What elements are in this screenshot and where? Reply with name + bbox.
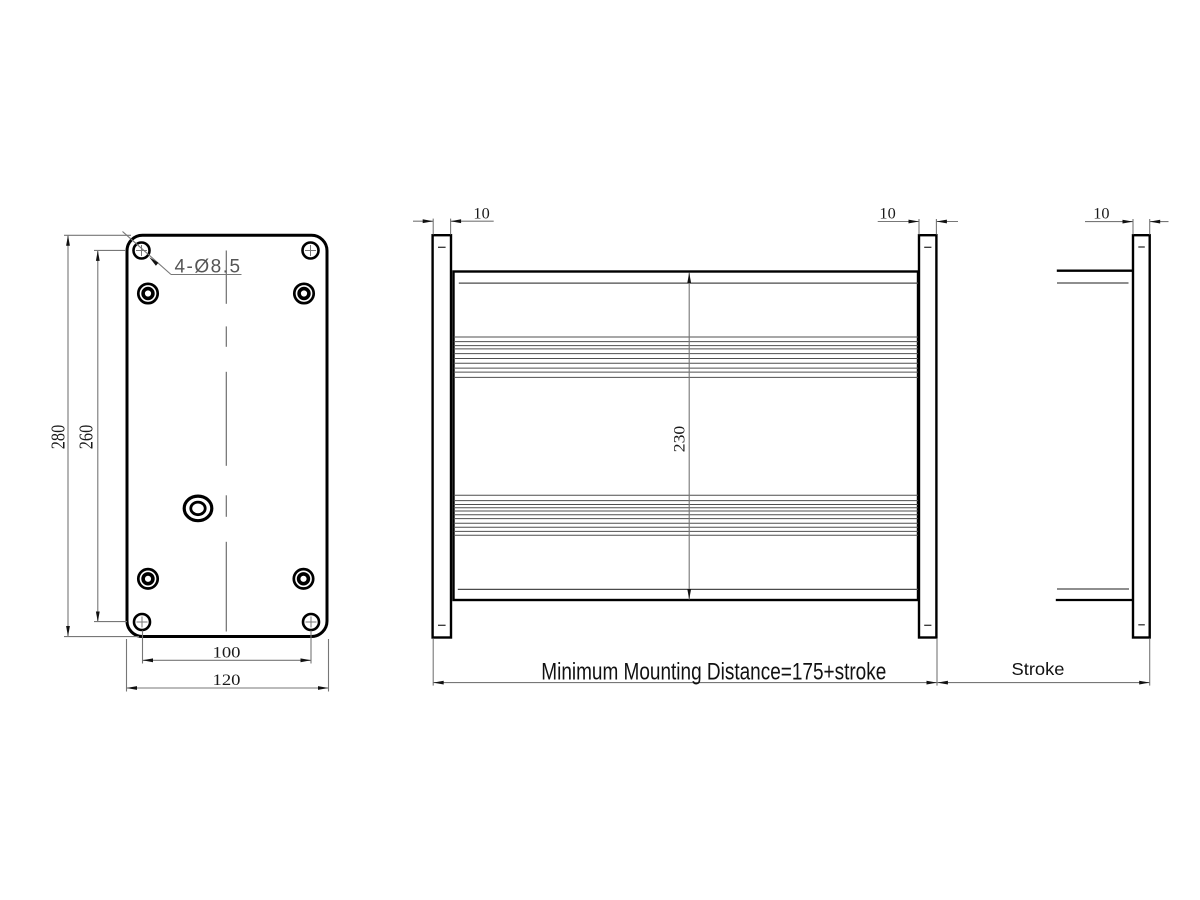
svg-text:Stroke: Stroke bbox=[1012, 659, 1065, 679]
svg-text:100: 100 bbox=[213, 645, 241, 662]
svg-text:10: 10 bbox=[879, 206, 896, 223]
svg-text:260: 260 bbox=[76, 425, 98, 450]
svg-text:230: 230 bbox=[672, 425, 689, 452]
svg-text:Minimum Mounting Distance=175+: Minimum Mounting Distance=175+stroke bbox=[541, 658, 886, 685]
svg-text:10: 10 bbox=[1093, 206, 1110, 223]
svg-text:4-Ø8.5: 4-Ø8.5 bbox=[174, 257, 241, 278]
svg-text:280: 280 bbox=[48, 425, 70, 450]
svg-text:10: 10 bbox=[473, 205, 490, 222]
svg-text:120: 120 bbox=[213, 672, 241, 689]
